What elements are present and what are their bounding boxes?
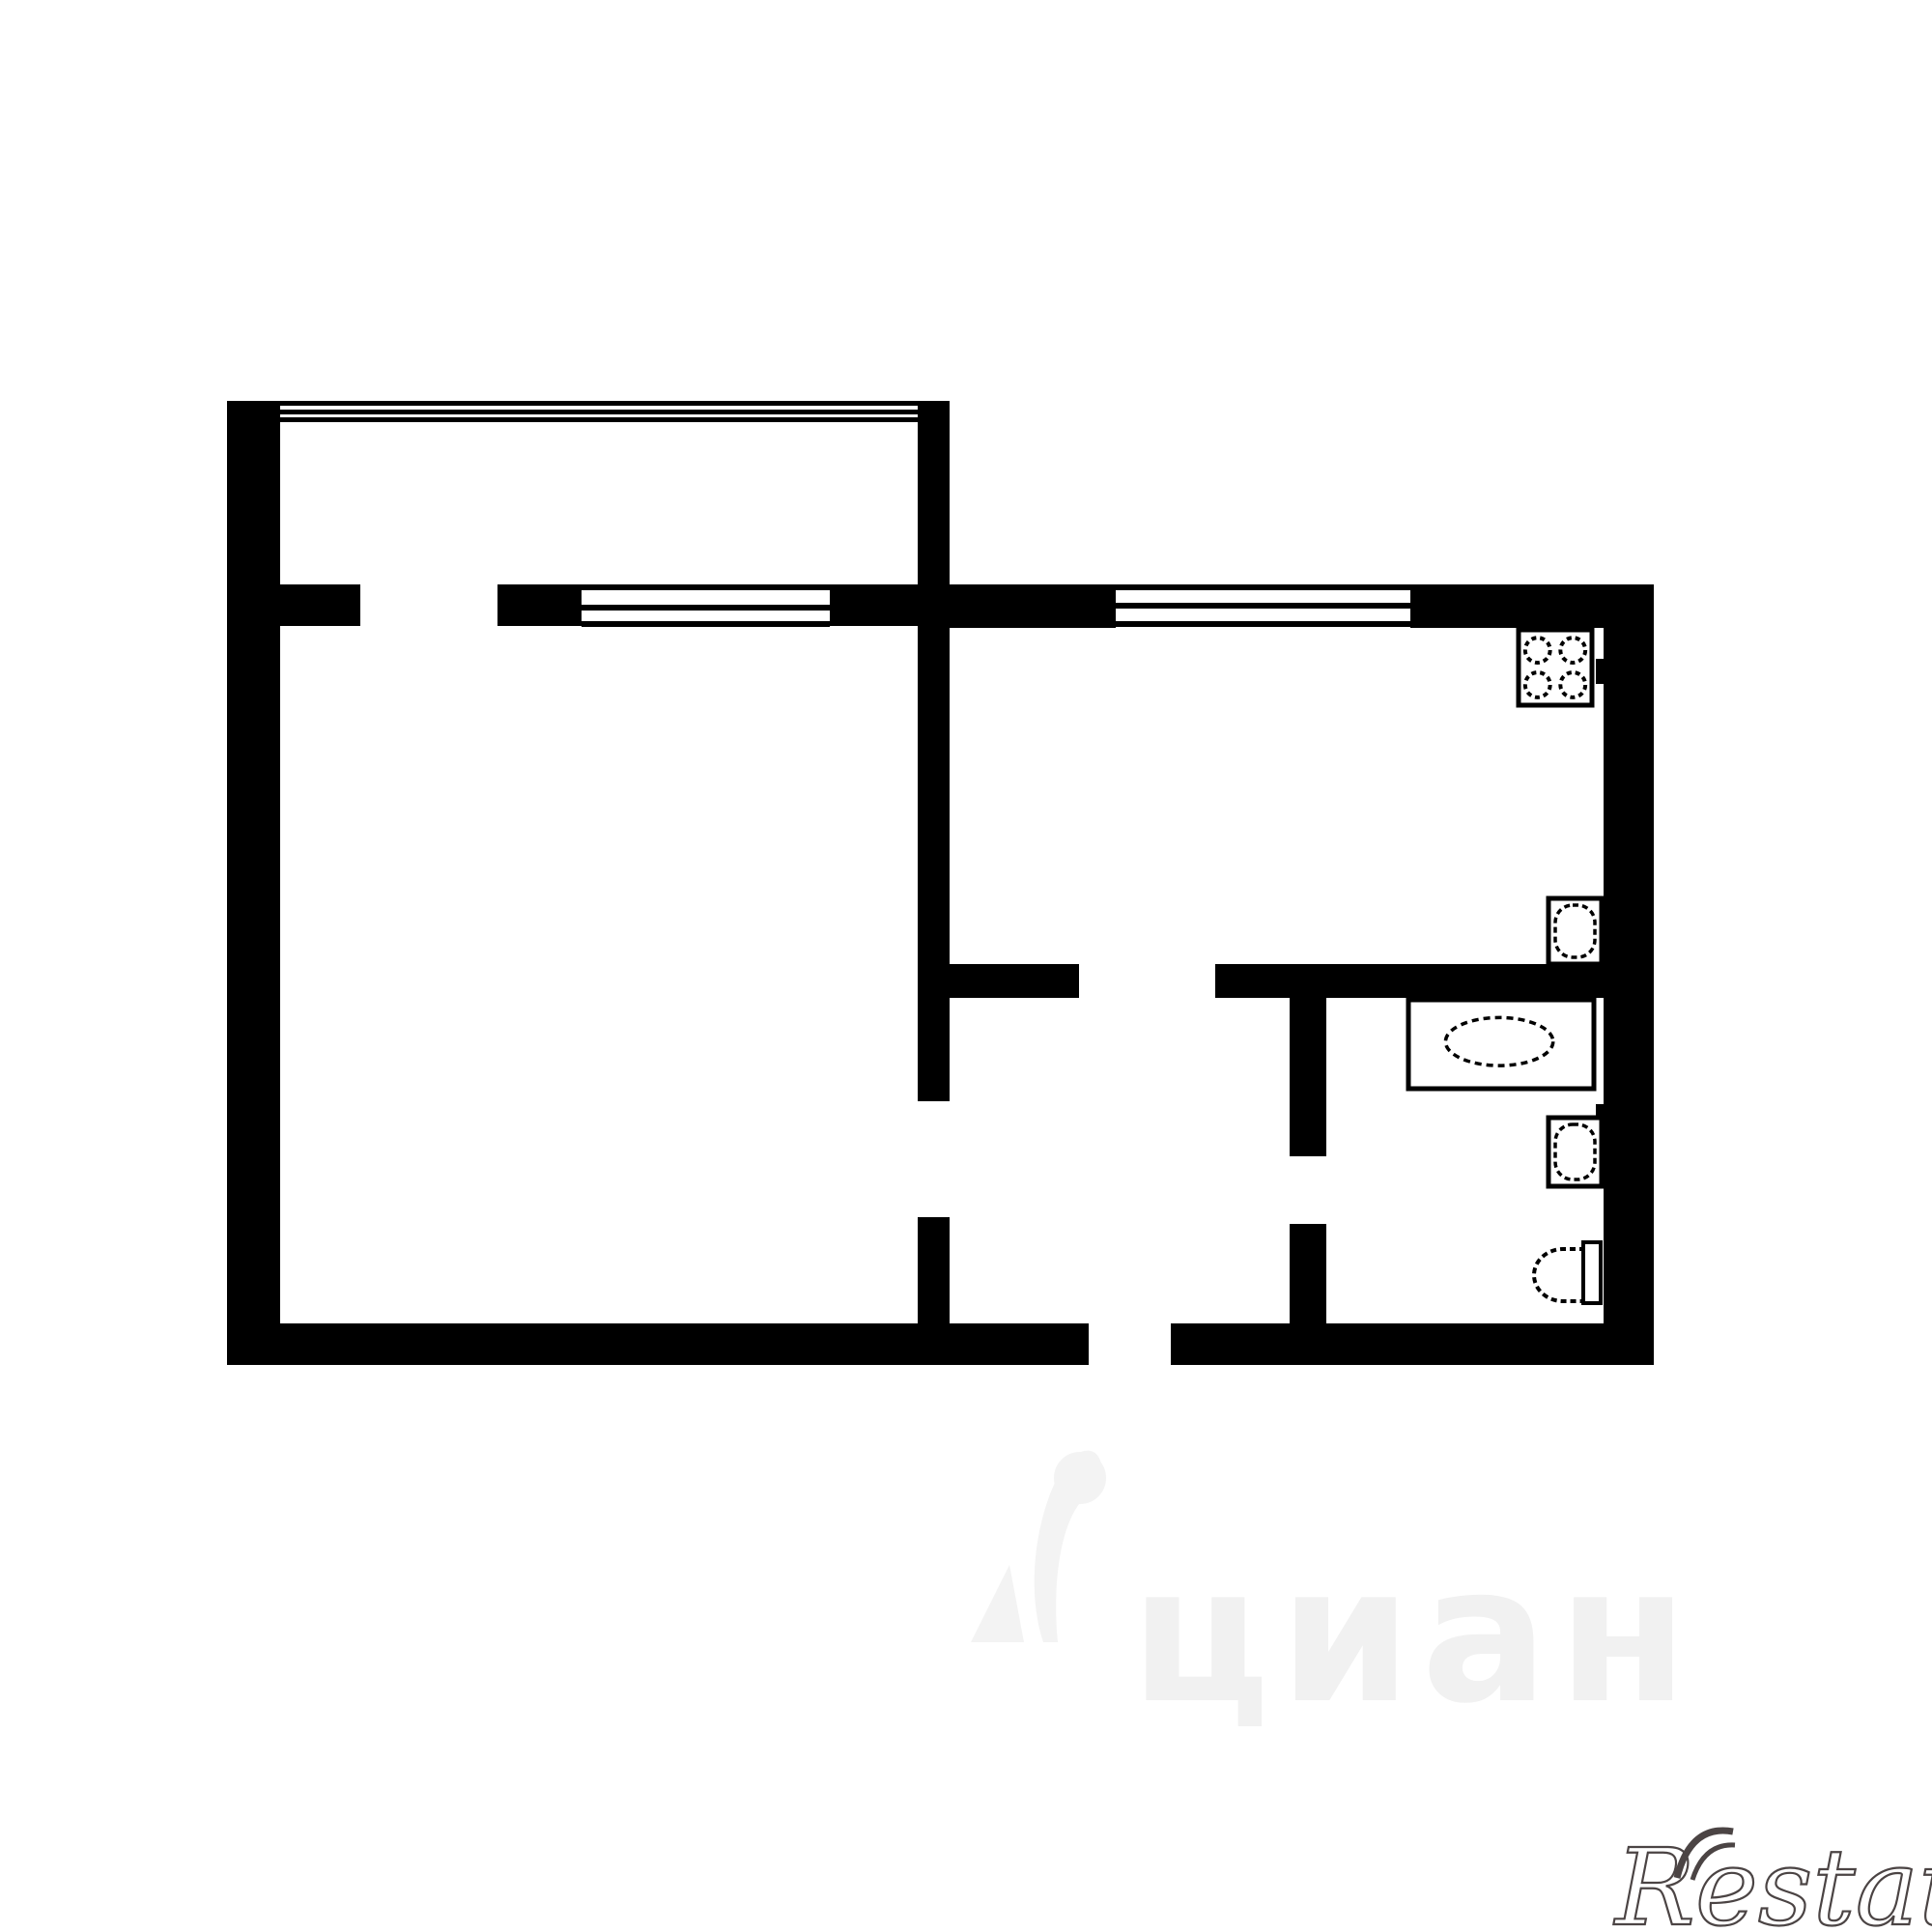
cian-logo-mark	[1035, 1451, 1102, 1642]
stove-burner	[1560, 672, 1585, 697]
cian-watermark: циан	[971, 1451, 1698, 1745]
cian-logo-mark-tail	[971, 1565, 1024, 1642]
kitchen-window	[1116, 584, 1410, 627]
balcony-wall-mid	[497, 584, 582, 626]
cian-watermark-text: циан	[1130, 1525, 1698, 1745]
stove-burner	[1560, 638, 1585, 663]
hall-top-wall-right	[1215, 964, 1604, 998]
balcony-room-window-line	[582, 605, 830, 611]
balcony-room-window-line	[582, 584, 830, 590]
stove-icon	[1519, 630, 1592, 705]
wall-notch-kitchen	[1596, 659, 1604, 684]
toilet-bowl	[1534, 1249, 1585, 1301]
balcony-glazing-line	[280, 410, 918, 414]
kitchen-window-line	[1116, 621, 1410, 627]
balcony-glazing-line	[280, 417, 918, 422]
outer-wall-bottom-left	[227, 1323, 1089, 1365]
balcony-wall-right	[830, 584, 918, 626]
toilet-tank	[1583, 1242, 1601, 1303]
kitchen-top-wall-left	[950, 584, 1116, 628]
stove-burner	[1525, 672, 1550, 697]
outer-wall-bottom-right	[1171, 1323, 1654, 1365]
floorplan-image: циан Restate	[0, 0, 1932, 1932]
outer-wall-right	[1604, 584, 1654, 1365]
bathtub-rim	[1408, 1000, 1594, 1089]
kitchen-window-line	[1116, 584, 1410, 590]
outer-wall-left	[227, 401, 280, 1365]
balcony-glazing-line	[280, 401, 918, 406]
bathroom-basin-icon	[1548, 1118, 1602, 1186]
bathroom-divider-lower	[1290, 1224, 1326, 1323]
kitchen-sink-icon	[1548, 898, 1602, 964]
balcony-room-window	[582, 584, 830, 627]
toilet-icon	[1534, 1242, 1601, 1303]
restate-watermark: Restate	[1613, 1826, 1932, 1932]
restate-watermark-text: Restate	[1613, 1826, 1932, 1932]
stove-burner	[1525, 638, 1550, 663]
bathroom-divider-upper	[1290, 998, 1326, 1156]
balcony-room-window-line	[582, 621, 830, 627]
floorplan-canvas: циан Restate	[0, 0, 1932, 1932]
walls-layer	[227, 401, 1654, 1365]
balcony-glazing	[280, 401, 918, 422]
bathtub-icon	[1408, 1000, 1594, 1089]
kitchen-window-line	[1116, 603, 1410, 609]
living-kitchen-divider-upper	[918, 401, 950, 1101]
balcony-wall-left-stub	[280, 584, 360, 626]
hall-top-wall-left	[950, 964, 1079, 998]
